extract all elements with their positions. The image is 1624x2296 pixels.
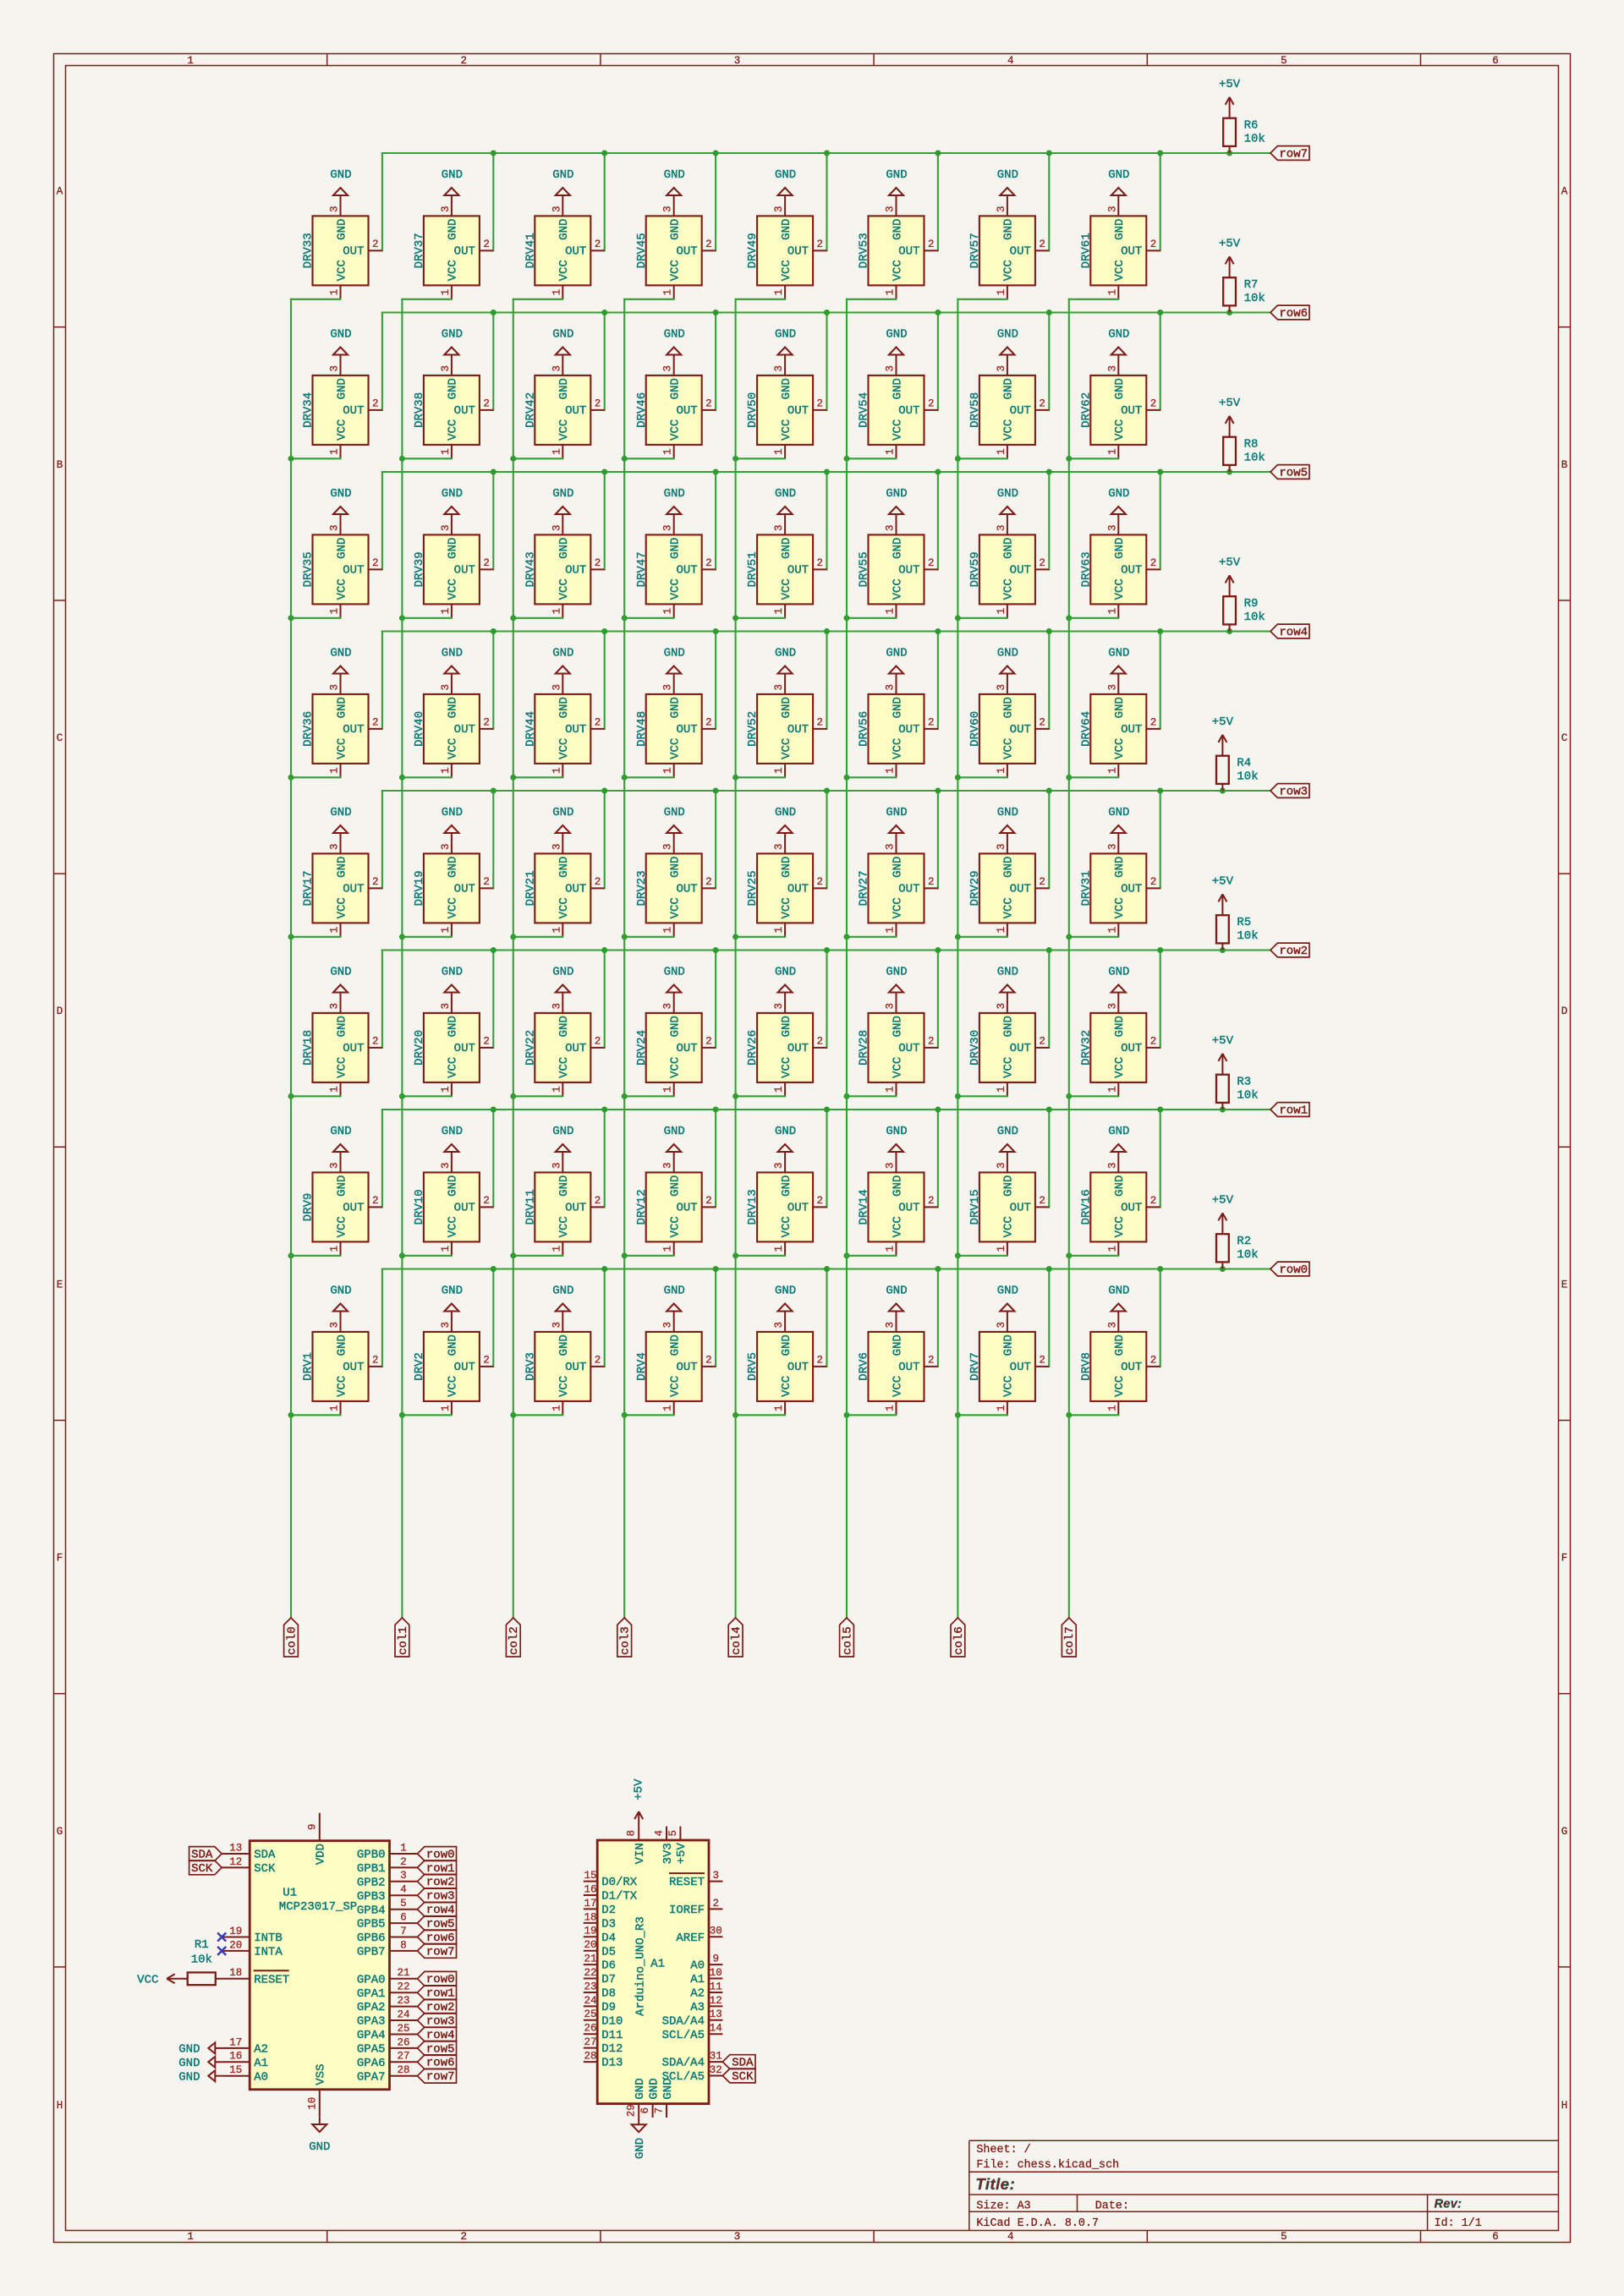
svg-text:GND: GND [335,538,348,559]
svg-text:2: 2 [712,1898,719,1910]
svg-text:GND: GND [775,487,796,501]
svg-text:10: 10 [710,1967,722,1979]
svg-text:GND: GND [330,647,351,660]
svg-text:2: 2 [483,557,490,569]
svg-text:GND: GND [447,1175,460,1197]
svg-text:1: 1 [329,289,341,296]
svg-text:29: 29 [626,2104,638,2117]
svg-text:OUT: OUT [676,404,697,418]
svg-text:VCC: VCC [669,578,683,600]
svg-text:22: 22 [397,1981,409,1993]
svg-text:DRV59: DRV59 [968,551,982,587]
svg-text:+5V: +5V [1219,397,1241,410]
svg-text:DRV43: DRV43 [524,551,537,587]
svg-text:DRV58: DRV58 [968,392,982,428]
svg-text:GND: GND [1002,697,1016,718]
svg-text:VCC: VCC [557,1216,571,1237]
svg-text:D7: D7 [601,1973,616,1986]
svg-text:OUT: OUT [898,1361,919,1374]
svg-text:DRV62: DRV62 [1079,392,1093,428]
svg-text:2: 2 [1150,717,1157,729]
svg-text:2: 2 [372,876,379,888]
svg-text:GND: GND [780,857,793,878]
svg-text:VCC: VCC [1113,1057,1127,1078]
svg-text:VCC: VCC [891,578,904,600]
svg-text:GND: GND [891,378,904,399]
svg-text:1: 1 [551,767,562,774]
svg-text:OUT: OUT [454,723,475,737]
svg-text:DRV21: DRV21 [524,870,537,906]
svg-text:1: 1 [773,1405,785,1411]
svg-text:1: 1 [1106,448,1118,455]
svg-text:6: 6 [1492,55,1499,67]
svg-text:DRV54: DRV54 [858,392,871,428]
svg-text:DRV30: DRV30 [968,1030,982,1066]
svg-text:21: 21 [584,1954,596,1965]
svg-text:3: 3 [329,843,341,850]
svg-text:16: 16 [584,1883,596,1895]
svg-text:1: 1 [187,2231,194,2243]
svg-text:3: 3 [329,1322,341,1329]
svg-text:D8: D8 [601,1987,616,2001]
svg-text:10k: 10k [1244,452,1265,465]
svg-text:1: 1 [996,608,1007,615]
svg-text:DRV27: DRV27 [858,870,871,906]
svg-text:col4: col4 [730,1626,743,1655]
svg-text:D0/RX: D0/RX [601,1876,638,1889]
svg-text:DRV4: DRV4 [635,1352,649,1381]
svg-text:VCC: VCC [557,260,571,281]
svg-text:DRV9: DRV9 [302,1193,315,1222]
svg-text:VCC: VCC [557,1057,571,1078]
svg-text:DRV12: DRV12 [635,1189,649,1225]
svg-text:3: 3 [996,1322,1007,1329]
svg-text:1: 1 [662,927,674,934]
svg-text:28: 28 [397,2064,409,2076]
svg-text:GND: GND [447,219,460,240]
svg-text:OUT: OUT [1010,1042,1031,1055]
svg-text:2: 2 [483,717,490,729]
svg-text:GPA7: GPA7 [357,2070,386,2084]
svg-text:VCC: VCC [557,738,571,759]
svg-text:VIN: VIN [634,1843,647,1864]
svg-text:3: 3 [773,843,785,850]
svg-text:2: 2 [817,717,824,729]
svg-text:GND: GND [669,378,683,399]
svg-text:VCC: VCC [1113,738,1127,759]
svg-text:GND: GND [775,966,796,979]
svg-text:VCC: VCC [1002,1376,1016,1397]
svg-text:5: 5 [667,1830,679,1837]
svg-text:VCC: VCC [780,1376,793,1397]
svg-text:VCC: VCC [780,738,793,759]
svg-text:VCC: VCC [669,1216,683,1237]
svg-text:GND: GND [1002,538,1016,559]
svg-text:DRV15: DRV15 [968,1189,982,1225]
svg-text:GND: GND [886,168,907,182]
svg-text:DRV34: DRV34 [302,392,315,428]
svg-text:DRV24: DRV24 [635,1030,649,1066]
svg-text:SDA/A4: SDA/A4 [662,2057,705,2070]
svg-text:2: 2 [817,557,824,569]
svg-text:GND: GND [552,168,573,182]
svg-text:2: 2 [1150,1355,1157,1367]
svg-text:+5V: +5V [633,1778,646,1800]
svg-text:GND: GND [664,487,685,501]
svg-text:GND: GND [664,806,685,819]
svg-text:DRV1: DRV1 [302,1352,315,1381]
svg-text:GND: GND [775,806,796,819]
svg-text:GND: GND [447,1334,460,1356]
svg-text:GND: GND [330,966,351,979]
svg-text:B: B [57,459,63,471]
svg-text:3: 3 [662,365,674,372]
svg-text:GND: GND [997,806,1018,819]
svg-text:GPB4: GPB4 [357,1904,386,1917]
svg-text:DRV8: DRV8 [1079,1352,1093,1381]
svg-text:1: 1 [551,1086,562,1093]
svg-text:GND: GND [669,857,683,878]
svg-text:3: 3 [551,524,562,531]
svg-text:VCC: VCC [669,897,683,918]
svg-text:1: 1 [329,767,341,774]
svg-text:VCC: VCC [669,419,683,441]
svg-text:OUT: OUT [454,245,475,259]
svg-text:row6: row6 [426,1932,455,1945]
svg-text:3: 3 [1106,1162,1118,1169]
svg-text:GPB5: GPB5 [357,1918,386,1932]
svg-text:10k: 10k [1237,770,1258,784]
svg-text:32: 32 [710,2064,722,2076]
svg-text:GND: GND [335,697,348,718]
svg-text:row0: row0 [1279,1263,1308,1277]
svg-text:1: 1 [329,608,341,615]
svg-text:GND: GND [178,2057,200,2070]
svg-text:1: 1 [885,608,897,615]
svg-text:23: 23 [584,1981,596,1992]
svg-text:DRV13: DRV13 [746,1189,760,1225]
svg-text:27: 27 [397,2051,409,2063]
svg-text:R5: R5 [1237,916,1251,929]
svg-text:2: 2 [461,55,468,67]
svg-text:2: 2 [595,1355,601,1367]
svg-text:1: 1 [1106,1246,1118,1252]
svg-text:1: 1 [662,289,674,296]
svg-text:GND: GND [886,328,907,342]
svg-text:OUT: OUT [1121,245,1142,259]
svg-text:3: 3 [885,205,897,212]
svg-text:3: 3 [329,684,341,691]
svg-text:GPA5: GPA5 [357,2043,386,2057]
svg-text:VCC: VCC [447,578,460,600]
svg-text:1: 1 [773,927,785,934]
svg-text:VCC: VCC [1002,1057,1016,1078]
svg-text:3: 3 [440,684,452,691]
svg-text:AREF: AREF [676,1932,705,1945]
svg-text:3: 3 [440,205,452,212]
svg-text:2: 2 [372,398,379,410]
svg-text:VDD: VDD [315,1844,328,1865]
svg-text:2: 2 [817,876,824,888]
svg-text:DRV44: DRV44 [524,711,537,747]
svg-text:VCC: VCC [780,260,793,281]
svg-text:2: 2 [372,717,379,729]
svg-text:R7: R7 [1244,278,1259,292]
svg-text:DRV53: DRV53 [858,233,871,268]
svg-text:2: 2 [928,1036,935,1048]
svg-text:DRV35: DRV35 [302,551,315,587]
svg-text:1: 1 [551,448,562,455]
svg-text:row5: row5 [426,2042,455,2056]
svg-text:GND: GND [1108,1285,1129,1298]
svg-text:GND: GND [664,1285,685,1298]
svg-text:6: 6 [1492,2231,1499,2243]
svg-text:2: 2 [372,238,379,250]
svg-text:Rev:: Rev: [1435,2198,1462,2211]
svg-text:DRV18: DRV18 [302,1030,315,1066]
svg-text:row5: row5 [426,1918,455,1932]
svg-text:25: 25 [397,2023,409,2035]
svg-text:1: 1 [885,1405,897,1411]
svg-text:GND: GND [1113,1016,1127,1037]
svg-text:3: 3 [551,365,562,372]
svg-text:RESET: RESET [254,1973,289,1986]
svg-text:1: 1 [440,927,452,934]
svg-text:2: 2 [817,398,824,410]
svg-text:3: 3 [662,1322,674,1329]
svg-text:File: chess.kicad_sch: File: chess.kicad_sch [976,2159,1119,2172]
svg-text:OUT: OUT [676,1361,697,1374]
svg-text:3: 3 [885,1003,897,1010]
svg-text:VCC: VCC [1002,738,1016,759]
svg-text:SDA: SDA [191,1848,213,1861]
svg-text:OUT: OUT [1121,1361,1142,1374]
svg-text:D2: D2 [601,1904,616,1917]
svg-text:DRV11: DRV11 [524,1189,537,1225]
svg-text:1: 1 [440,1086,452,1093]
svg-text:Arduino_UNO_R3: Arduino_UNO_R3 [634,1916,648,2016]
svg-text:1: 1 [329,1086,341,1093]
svg-text:1: 1 [440,1405,452,1411]
svg-text:GND: GND [335,1016,348,1037]
svg-text:DRV3: DRV3 [524,1352,537,1381]
svg-text:OUT: OUT [454,564,475,578]
svg-text:3: 3 [996,205,1007,212]
svg-text:GND: GND [661,2078,675,2099]
svg-text:1: 1 [996,1246,1007,1252]
svg-text:OUT: OUT [1121,404,1142,418]
svg-text:1: 1 [1106,289,1118,296]
svg-text:D: D [57,1006,63,1017]
svg-text:3: 3 [440,1322,452,1329]
svg-text:23: 23 [397,1995,409,2007]
svg-text:row7: row7 [426,2070,455,2084]
svg-text:Title:: Title: [975,2175,1015,2193]
svg-text:2: 2 [483,398,490,410]
svg-text:GPA6: GPA6 [357,2057,386,2070]
svg-text:1: 1 [773,448,785,455]
svg-text:GND: GND [891,1175,904,1197]
svg-text:26: 26 [584,2023,596,2035]
svg-text:3: 3 [551,843,562,850]
svg-text:2: 2 [705,717,712,729]
svg-text:4: 4 [1007,55,1014,67]
svg-text:GND: GND [669,538,683,559]
svg-text:21: 21 [397,1967,409,1979]
svg-text:3: 3 [1106,365,1118,372]
svg-text:row0: row0 [426,1973,455,1986]
svg-text:1: 1 [996,927,1007,934]
svg-text:DRV6: DRV6 [858,1352,871,1381]
svg-text:GND: GND [335,378,348,399]
svg-text:1: 1 [329,1405,341,1411]
svg-text:VCC: VCC [891,1376,904,1397]
svg-text:GND: GND [780,538,793,559]
svg-text:OUT: OUT [454,1361,475,1374]
svg-text:GND: GND [557,1175,571,1197]
svg-text:row1: row1 [426,1862,455,1876]
svg-text:2: 2 [595,398,601,410]
svg-text:31: 31 [710,2051,722,2063]
svg-text:GND: GND [178,2043,200,2057]
svg-text:DRV57: DRV57 [968,233,982,268]
svg-text:OUT: OUT [676,1042,697,1055]
svg-text:2: 2 [483,876,490,888]
svg-text:DRV33: DRV33 [302,233,315,268]
svg-text:VCC: VCC [1002,578,1016,600]
svg-text:GPB1: GPB1 [357,1862,386,1876]
svg-text:GND: GND [634,2138,647,2159]
svg-text:GND: GND [886,966,907,979]
svg-text:VCC: VCC [780,897,793,918]
svg-text:D9: D9 [601,2001,616,2014]
svg-text:VCC: VCC [447,419,460,441]
svg-text:GND: GND [891,1334,904,1356]
svg-text:2: 2 [1150,876,1157,888]
svg-text:GND: GND [647,2078,661,2099]
svg-text:GND: GND [634,2078,647,2099]
svg-text:GPB2: GPB2 [357,1876,386,1889]
svg-text:VCC: VCC [669,1057,683,1078]
svg-text:DRV31: DRV31 [1079,870,1093,906]
svg-text:Sheet: /: Sheet: / [976,2144,1030,2156]
svg-text:VCC: VCC [891,897,904,918]
svg-text:19: 19 [229,1926,242,1937]
svg-text:VCC: VCC [891,738,904,759]
svg-text:OUT: OUT [454,404,475,418]
svg-text:GND: GND [775,168,796,182]
svg-text:19: 19 [584,1926,596,1937]
svg-text:DRV40: DRV40 [413,711,426,747]
svg-text:7: 7 [400,1926,407,1937]
svg-text:VCC: VCC [891,419,904,441]
svg-text:2: 2 [817,238,824,250]
svg-text:3: 3 [773,1003,785,1010]
svg-text:2: 2 [817,1036,824,1048]
svg-text:OUT: OUT [343,1042,364,1055]
svg-text:VCC: VCC [335,1216,348,1237]
svg-text:VCC: VCC [1002,260,1016,281]
svg-text:GND: GND [886,487,907,501]
svg-text:GND: GND [891,538,904,559]
svg-text:3: 3 [329,365,341,372]
svg-text:VSS: VSS [315,2064,328,2085]
svg-text:2: 2 [1039,1036,1045,1048]
svg-text:3: 3 [773,524,785,531]
svg-text:+5V: +5V [1219,238,1241,251]
svg-text:3: 3 [662,1162,674,1169]
svg-text:D13: D13 [601,2057,623,2070]
svg-text:1: 1 [773,289,785,296]
svg-text:30: 30 [710,1926,722,1937]
svg-text:D5: D5 [601,1945,616,1959]
svg-text:10k: 10k [1244,611,1265,624]
svg-text:OUT: OUT [676,883,697,896]
svg-text:1: 1 [187,55,194,67]
svg-text:GND: GND [886,1285,907,1298]
svg-text:1: 1 [662,1405,674,1411]
svg-text:DRV20: DRV20 [413,1030,426,1066]
svg-text:VCC: VCC [891,260,904,281]
svg-text:GPA0: GPA0 [357,1973,386,1986]
svg-text:OUT: OUT [676,1202,697,1215]
svg-text:DRV55: DRV55 [858,551,871,587]
svg-text:GPB6: GPB6 [357,1932,386,1945]
svg-text:A2: A2 [254,2043,268,2057]
svg-text:SCK: SCK [732,2070,754,2084]
svg-text:1: 1 [773,767,785,774]
svg-text:GND: GND [1113,1334,1127,1356]
svg-text:1: 1 [551,1405,562,1411]
svg-text:GND: GND [997,487,1018,501]
svg-text:2: 2 [705,876,712,888]
svg-text:OUT: OUT [787,404,809,418]
svg-text:DRV45: DRV45 [635,233,649,268]
svg-text:OUT: OUT [343,404,364,418]
svg-text:VCC: VCC [669,1376,683,1397]
svg-text:13: 13 [229,1842,242,1854]
svg-text:3V3: 3V3 [661,1843,675,1864]
svg-text:GND: GND [669,219,683,240]
svg-text:R4: R4 [1237,757,1251,770]
svg-text:GND: GND [1108,487,1129,501]
svg-text:R2: R2 [1237,1235,1251,1248]
svg-text:GND: GND [664,966,685,979]
svg-text:GND: GND [552,328,573,342]
svg-text:R9: R9 [1244,597,1259,611]
svg-text:2: 2 [928,1355,935,1367]
svg-text:GND: GND [1108,328,1129,342]
svg-text:GND: GND [1113,219,1127,240]
svg-text:INTB: INTB [254,1932,283,1945]
svg-text:1: 1 [1106,767,1118,774]
svg-text:GND: GND [891,697,904,718]
svg-text:OUT: OUT [454,1202,475,1215]
svg-text:3: 3 [885,365,897,372]
svg-text:2: 2 [1039,876,1045,888]
svg-text:C: C [57,732,63,744]
svg-text:12: 12 [229,1856,242,1868]
svg-text:A3: A3 [690,2001,705,2014]
svg-text:VCC: VCC [780,1057,793,1078]
svg-text:3: 3 [662,205,674,212]
svg-text:col3: col3 [619,1626,633,1655]
svg-text:1: 1 [885,1246,897,1252]
svg-text:9: 9 [712,1954,719,1965]
svg-text:1: 1 [773,1246,785,1252]
svg-text:3: 3 [440,1003,452,1010]
svg-text:GND: GND [891,219,904,240]
